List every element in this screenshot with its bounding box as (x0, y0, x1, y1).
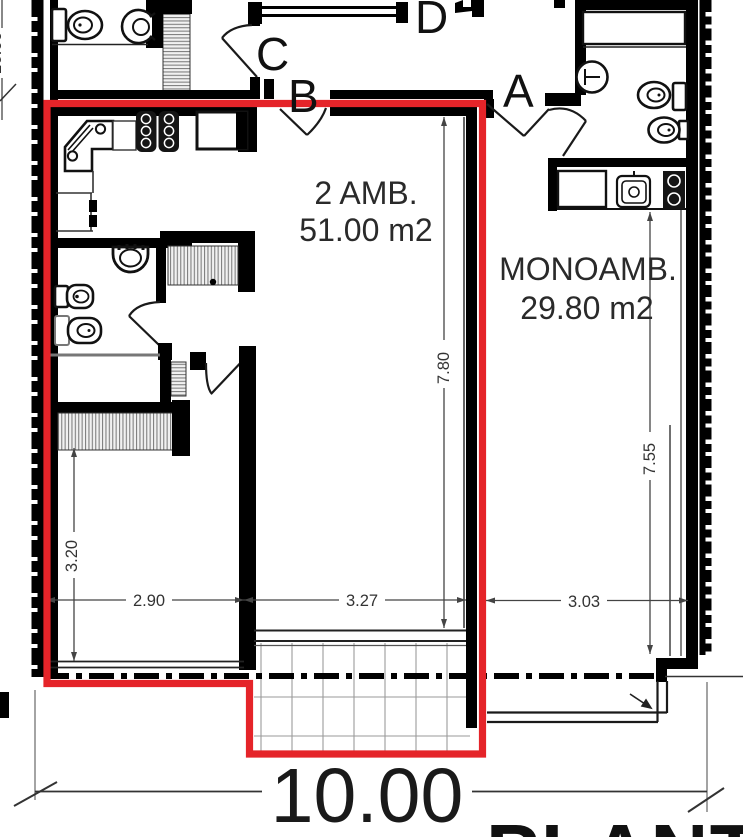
svg-text:3.20: 3.20 (63, 540, 81, 572)
svg-text:16.00: 16.00 (0, 32, 5, 75)
svg-text:7.80: 7.80 (435, 352, 453, 384)
svg-text:10.00: 10.00 (271, 753, 464, 837)
svg-text:MONOAMB.: MONOAMB. (499, 251, 677, 287)
svg-text:51.00 m2: 51.00 m2 (299, 212, 432, 248)
svg-text:3.27: 3.27 (346, 592, 378, 610)
svg-text:7.55: 7.55 (641, 443, 659, 475)
svg-text:3.03: 3.03 (568, 593, 600, 611)
svg-text:D: D (415, 0, 448, 43)
svg-text:29.80 m2: 29.80 m2 (520, 290, 653, 326)
svg-text:2 AMB.: 2 AMB. (314, 175, 417, 211)
svg-text:B: B (288, 70, 319, 122)
svg-text:PLANTA: PLANTA (486, 808, 743, 837)
svg-text:C: C (256, 28, 289, 80)
svg-text:2.90: 2.90 (133, 592, 165, 610)
svg-text:A: A (503, 65, 534, 117)
